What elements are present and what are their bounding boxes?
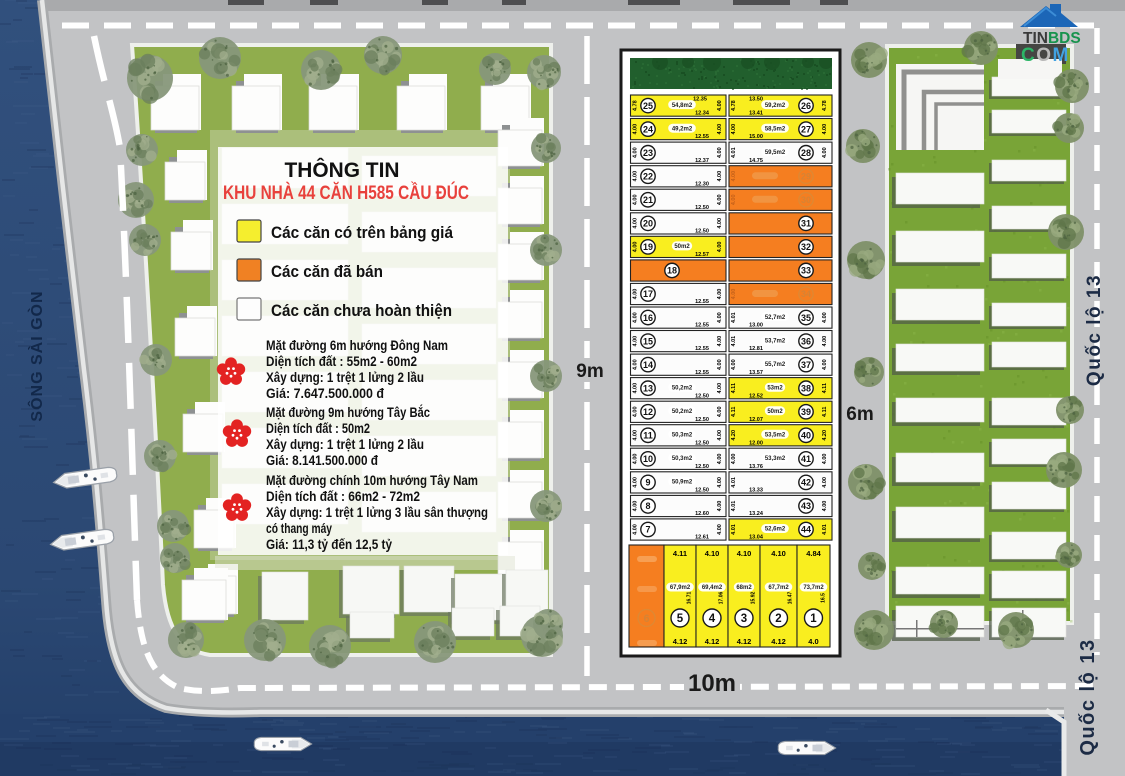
svg-text:4.00: 4.00 — [633, 147, 639, 158]
svg-text:4.00: 4.00 — [633, 218, 639, 229]
svg-text:12.37: 12.37 — [695, 158, 709, 164]
svg-text:1: 1 — [810, 613, 817, 625]
svg-text:4.00: 4.00 — [717, 383, 723, 394]
svg-text:4.01: 4.01 — [731, 524, 737, 535]
svg-text:4.00: 4.00 — [717, 454, 723, 465]
svg-text:4.00: 4.00 — [822, 501, 828, 512]
svg-text:4.00: 4.00 — [633, 430, 639, 441]
svg-text:Giá: 7.647.500.000 đ: Giá: 7.647.500.000 đ — [266, 385, 384, 401]
svg-text:53m2: 53m2 — [767, 385, 783, 391]
svg-text:25: 25 — [643, 101, 653, 111]
svg-text:có thang máy: có thang máy — [266, 520, 332, 536]
svg-text:12.50: 12.50 — [695, 440, 709, 446]
svg-text:4.01: 4.01 — [731, 477, 737, 488]
svg-text:Diện tích đất : 50m2: Diện tích đất : 50m2 — [266, 420, 370, 436]
svg-text:4.00: 4.00 — [717, 406, 723, 417]
svg-text:13.76: 13.76 — [749, 464, 763, 470]
svg-text:2: 2 — [775, 613, 781, 625]
svg-text:16.47: 16.47 — [788, 592, 794, 605]
svg-text:12.35: 12.35 — [693, 97, 707, 103]
svg-text:16: 16 — [643, 313, 653, 323]
svg-text:15: 15 — [643, 336, 653, 346]
svg-text:13.00: 13.00 — [749, 323, 763, 329]
svg-text:Mặt đường 6m hướng Đông Nam: Mặt đường 6m hướng Đông Nam — [266, 337, 448, 353]
svg-text:13.24: 13.24 — [749, 511, 764, 517]
svg-text:4.00: 4.00 — [731, 289, 737, 300]
svg-text:11: 11 — [643, 431, 653, 441]
svg-text:14.75: 14.75 — [749, 158, 763, 164]
svg-text:13.33: 13.33 — [749, 488, 763, 494]
svg-text:4.10: 4.10 — [705, 549, 720, 558]
svg-text:Quốc lộ 13: Quốc lộ 13 — [1077, 638, 1099, 755]
svg-text:4.00: 4.00 — [633, 124, 639, 135]
svg-text:4.12: 4.12 — [673, 637, 688, 646]
svg-text:4.00: 4.00 — [822, 124, 828, 135]
svg-text:12: 12 — [643, 407, 653, 417]
svg-text:50,3m2: 50,3m2 — [672, 433, 693, 439]
svg-text:36: 36 — [801, 336, 811, 346]
svg-text:41: 41 — [801, 454, 811, 464]
svg-text:4.11: 4.11 — [673, 549, 687, 558]
svg-text:Quốc lộ 13: Quốc lộ 13 — [1084, 274, 1105, 386]
svg-text:Xây dựng: 1 trệt 1 lửng 3 lầu: Xây dựng: 1 trệt 1 lửng 3 lầu sân thượng — [266, 504, 488, 520]
svg-text:24: 24 — [643, 124, 653, 134]
svg-text:13.50: 13.50 — [749, 97, 763, 103]
svg-text:27: 27 — [801, 124, 811, 134]
svg-text:4.00: 4.00 — [717, 171, 723, 182]
svg-text:3: 3 — [741, 613, 747, 625]
svg-text:12.50: 12.50 — [695, 417, 709, 423]
svg-text:4.20: 4.20 — [731, 430, 737, 441]
svg-text:17: 17 — [643, 289, 653, 299]
svg-text:Mặt đường chính 10m hướng Tây: Mặt đường chính 10m hướng Tây Nam — [266, 472, 478, 488]
svg-text:6: 6 — [643, 613, 649, 625]
svg-text:67,9m2: 67,9m2 — [670, 585, 691, 591]
svg-text:12.52: 12.52 — [749, 393, 763, 399]
svg-text:4.11: 4.11 — [822, 383, 828, 393]
svg-text:43: 43 — [801, 501, 811, 511]
svg-text:13.57: 13.57 — [749, 370, 763, 376]
svg-text:8: 8 — [645, 501, 650, 511]
svg-text:12.07: 12.07 — [749, 417, 763, 423]
svg-text:30: 30 — [801, 195, 811, 205]
svg-text:50,2m2: 50,2m2 — [672, 385, 693, 391]
svg-text:20: 20 — [643, 219, 653, 229]
svg-text:50m2: 50m2 — [767, 409, 783, 415]
svg-text:4.00: 4.00 — [633, 501, 639, 512]
svg-text:39: 39 — [801, 407, 811, 417]
svg-text:4.00: 4.00 — [717, 124, 723, 135]
svg-text:4.00: 4.00 — [633, 312, 639, 323]
svg-text:4.84: 4.84 — [806, 549, 821, 558]
svg-text:Mặt đường 9m hướng Tây Bắc: Mặt đường 9m hướng Tây Bắc — [266, 403, 430, 420]
svg-text:68m2: 68m2 — [736, 585, 752, 591]
svg-text:49,2m2: 49,2m2 — [672, 126, 693, 132]
svg-text:4.00: 4.00 — [731, 454, 737, 465]
svg-text:4.00: 4.00 — [822, 454, 828, 465]
svg-text:THÔNG TIN: THÔNG TIN — [285, 157, 400, 182]
svg-text:12.55: 12.55 — [695, 346, 709, 352]
svg-text:69,4m2: 69,4m2 — [702, 585, 723, 591]
svg-text:4.0: 4.0 — [808, 637, 818, 646]
svg-text:53,7m2: 53,7m2 — [765, 338, 786, 344]
svg-text:12.55: 12.55 — [695, 299, 709, 305]
svg-text:4.00: 4.00 — [633, 242, 639, 253]
svg-text:12.34: 12.34 — [695, 111, 710, 117]
svg-text:4.00: 4.00 — [717, 242, 723, 253]
svg-text:Diện tích đất : 55m2 - 60m2: Diện tích đất : 55m2 - 60m2 — [266, 353, 417, 369]
svg-text:4.00: 4.00 — [633, 524, 639, 535]
svg-text:15.92: 15.92 — [751, 592, 757, 605]
svg-text:4.00: 4.00 — [633, 359, 639, 370]
svg-text:Giá: 11,3 tỷ đến 12,5 tỷ: Giá: 11,3 tỷ đến 12,5 tỷ — [266, 536, 392, 552]
svg-text:12.55: 12.55 — [695, 323, 709, 329]
svg-text:4.00: 4.00 — [731, 124, 737, 135]
svg-text:52,7m2: 52,7m2 — [765, 315, 786, 321]
svg-text:12.50: 12.50 — [695, 228, 709, 234]
svg-text:42: 42 — [801, 478, 811, 488]
svg-text:50,2m2: 50,2m2 — [672, 409, 693, 415]
svg-text:34: 34 — [801, 289, 811, 299]
svg-text:4.11: 4.11 — [731, 383, 737, 393]
svg-text:15.00: 15.00 — [749, 134, 763, 140]
svg-text:4: 4 — [709, 613, 716, 625]
svg-text:Xây dựng: 1 trệt 1 lửng 2 lầu: Xây dựng: 1 trệt 1 lửng 2 lầu — [266, 369, 424, 385]
svg-text:50,9m2: 50,9m2 — [672, 480, 693, 486]
svg-text:54,8m2: 54,8m2 — [672, 103, 693, 109]
svg-text:4.00: 4.00 — [633, 477, 639, 488]
svg-text:13.41: 13.41 — [749, 111, 763, 117]
svg-text:50m2: 50m2 — [674, 244, 690, 250]
svg-text:32: 32 — [801, 242, 811, 252]
svg-text:4.00: 4.00 — [717, 359, 723, 370]
svg-text:40: 40 — [801, 431, 811, 441]
svg-text:4.00: 4.00 — [633, 336, 639, 347]
svg-text:31: 31 — [801, 219, 811, 229]
svg-text:4.01: 4.01 — [731, 501, 737, 512]
svg-text:4.00: 4.00 — [717, 524, 723, 535]
svg-text:4.00: 4.00 — [822, 147, 828, 158]
svg-text:4.00: 4.00 — [633, 171, 639, 182]
svg-text:29: 29 — [801, 172, 811, 182]
svg-text:4.00: 4.00 — [717, 194, 723, 205]
svg-text:4.00: 4.00 — [717, 477, 723, 488]
svg-text:6m: 6m — [846, 404, 873, 425]
svg-text:10m: 10m — [688, 670, 736, 697]
svg-text:4.00: 4.00 — [731, 194, 737, 205]
svg-text:4.20: 4.20 — [822, 430, 828, 441]
svg-text:16.71: 16.71 — [687, 592, 693, 605]
svg-text:Xây dựng: 1 trệt 1 lửng 2 lầu: Xây dựng: 1 trệt 1 lửng 2 lầu — [266, 436, 424, 452]
svg-text:4.12: 4.12 — [771, 637, 786, 646]
svg-text:44: 44 — [801, 525, 811, 535]
svg-text:53,5m2: 53,5m2 — [765, 433, 786, 439]
svg-text:Diện tích đất : 66m2 - 72m2: Diện tích đất : 66m2 - 72m2 — [266, 488, 420, 504]
svg-text:4.00: 4.00 — [633, 406, 639, 417]
svg-text:35: 35 — [801, 313, 811, 323]
svg-text:4.00: 4.00 — [633, 454, 639, 465]
svg-text:21: 21 — [643, 195, 653, 205]
svg-text:9m: 9m — [576, 361, 603, 382]
svg-text:12.50: 12.50 — [695, 464, 709, 470]
svg-text:4.00: 4.00 — [822, 477, 828, 488]
svg-text:4.00: 4.00 — [717, 430, 723, 441]
svg-text:53,3m2: 53,3m2 — [765, 456, 786, 462]
svg-text:Các căn đã bán: Các căn đã bán — [271, 263, 383, 281]
svg-text:4.11: 4.11 — [731, 407, 737, 417]
svg-text:SÔNG SÀI GÒN: SÔNG SÀI GÒN — [27, 290, 46, 421]
svg-text:26: 26 — [801, 101, 811, 111]
svg-text:67,7m2: 67,7m2 — [768, 585, 789, 591]
svg-text:16.5: 16.5 — [821, 593, 827, 603]
svg-text:50,3m2: 50,3m2 — [672, 456, 693, 462]
svg-text:4.00: 4.00 — [633, 289, 639, 300]
svg-text:Các căn chưa hoàn thiện: Các căn chưa hoàn thiện — [271, 302, 452, 320]
svg-text:4.10: 4.10 — [737, 549, 752, 558]
svg-text:4.00: 4.00 — [717, 218, 723, 229]
svg-text:4.00: 4.00 — [633, 194, 639, 205]
svg-text:4.00: 4.00 — [731, 359, 737, 370]
svg-text:4.00: 4.00 — [633, 383, 639, 394]
svg-text:58,5m2: 58,5m2 — [765, 126, 786, 132]
svg-text:4.00: 4.00 — [822, 312, 828, 323]
svg-text:33: 33 — [801, 266, 811, 276]
svg-text:4.78: 4.78 — [731, 100, 737, 111]
svg-text:Giá: 8.141.500.000 đ: Giá: 8.141.500.000 đ — [266, 452, 378, 468]
svg-text:4.10: 4.10 — [771, 549, 786, 558]
svg-text:12.57: 12.57 — [695, 252, 709, 258]
svg-text:4.00: 4.00 — [717, 336, 723, 347]
svg-text:4.00: 4.00 — [717, 289, 723, 300]
svg-text:59,5m2: 59,5m2 — [765, 150, 786, 156]
svg-text:4.01: 4.01 — [731, 336, 737, 347]
svg-text:4.01: 4.01 — [731, 147, 737, 158]
svg-text:4.00: 4.00 — [717, 100, 723, 111]
svg-text:12.50: 12.50 — [695, 205, 709, 211]
svg-text:Các căn có trên bảng giá: Các căn có trên bảng giá — [271, 224, 454, 242]
svg-text:12.55: 12.55 — [695, 370, 709, 376]
svg-text:4.00: 4.00 — [822, 359, 828, 370]
svg-text:10: 10 — [643, 454, 653, 464]
svg-text:5: 5 — [677, 613, 684, 625]
svg-text:4.01: 4.01 — [731, 312, 737, 323]
svg-text:19: 19 — [643, 242, 653, 252]
svg-text:4.00: 4.00 — [717, 501, 723, 512]
svg-text:4.00: 4.00 — [717, 147, 723, 158]
svg-text:12.50: 12.50 — [695, 488, 709, 494]
svg-text:7: 7 — [645, 525, 650, 535]
svg-text:12.30: 12.30 — [695, 181, 709, 187]
svg-text:18: 18 — [667, 266, 677, 276]
svg-text:73,7m2: 73,7m2 — [803, 585, 824, 591]
svg-text:4.01: 4.01 — [822, 524, 828, 535]
svg-text:12.60: 12.60 — [695, 511, 709, 517]
svg-text:13: 13 — [643, 383, 653, 393]
svg-text:12.50: 12.50 — [695, 393, 709, 399]
svg-text:4.00: 4.00 — [717, 312, 723, 323]
svg-text:12.55: 12.55 — [695, 134, 709, 140]
svg-text:4.11: 4.11 — [822, 407, 828, 417]
svg-text:17.06: 17.06 — [719, 592, 725, 605]
svg-text:COM: COM — [1021, 45, 1070, 66]
svg-text:37: 37 — [801, 360, 811, 370]
svg-text:28: 28 — [801, 148, 811, 158]
svg-text:4.78: 4.78 — [633, 100, 639, 111]
svg-text:4.00: 4.00 — [822, 336, 828, 347]
svg-text:13.04: 13.04 — [749, 535, 764, 541]
svg-text:4.12: 4.12 — [737, 637, 752, 646]
svg-text:22: 22 — [643, 172, 653, 182]
svg-text:59,2m2: 59,2m2 — [765, 103, 786, 109]
svg-text:12.81: 12.81 — [749, 346, 763, 352]
svg-text:14: 14 — [643, 360, 653, 370]
svg-text:4.00: 4.00 — [731, 171, 737, 182]
svg-text:KHU NHÀ 44 CĂN H585 CẦU ĐÚC: KHU NHÀ 44 CĂN H585 CẦU ĐÚC — [223, 180, 469, 204]
svg-text:9: 9 — [645, 478, 650, 488]
svg-text:55,7m2: 55,7m2 — [765, 362, 786, 368]
svg-text:52,6m2: 52,6m2 — [765, 527, 786, 533]
svg-text:12.00: 12.00 — [749, 440, 763, 446]
svg-text:38: 38 — [801, 383, 811, 393]
svg-text:12.61: 12.61 — [695, 535, 709, 541]
svg-text:4.12: 4.12 — [705, 637, 720, 646]
svg-text:23: 23 — [643, 148, 653, 158]
svg-text:4.78: 4.78 — [822, 100, 828, 111]
